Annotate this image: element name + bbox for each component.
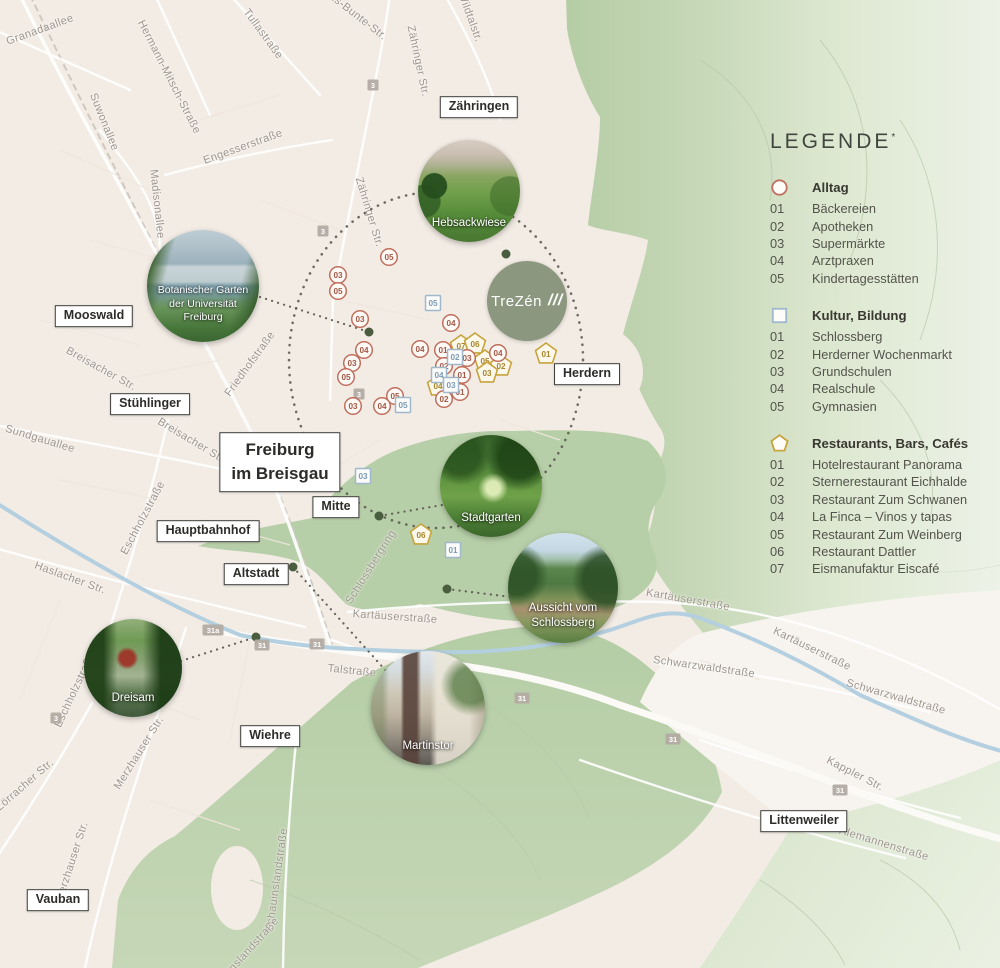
legend-item-bäckereien: 01Bäckereien [770,200,998,217]
legend-item-apotheken: 02Apotheken [770,217,998,234]
legend-item-label: Eismanufaktur Eiscafé [812,561,998,576]
legend-item-number: 01 [770,457,812,472]
svg-text:04: 04 [493,349,503,358]
svg-text:05: 05 [341,373,351,382]
legend-item-number: 03 [770,364,812,379]
legend-item-number: 03 [770,236,812,251]
svg-text:03: 03 [462,354,472,363]
svg-text:03: 03 [482,369,492,378]
legend-item-number: 02 [770,219,812,234]
legend-section-title: Alltag [812,180,998,195]
legend-body: Alltag01Bäckereien02Apotheken03Supermärk… [770,178,998,578]
marker-restaurants-01: 01 [536,343,557,363]
location-dot [375,512,384,521]
legend-item-number: 05 [770,271,812,286]
svg-text:02: 02 [450,353,460,362]
legend-title-asterisk: * [891,132,898,143]
legend-item-number: 01 [770,329,812,344]
legend-item-realschule: 04Realschule [770,380,998,397]
svg-text:04: 04 [415,345,425,354]
legend-item-label: Apotheken [812,219,998,234]
legend-item-number: 05 [770,527,812,542]
marker-kultur-03: 03 [356,469,371,484]
road-badge-31a: 31a [203,625,224,636]
legend-item-label: Kindertagesstätten [812,271,998,286]
legend-item-number: 04 [770,253,812,268]
legend-section-title: Kultur, Bildung [812,308,998,323]
svg-text:31: 31 [836,786,844,795]
legend-item-hotelrestaurant-panorama: 01Hotelrestaurant Panorama [770,456,998,473]
road-badges-layer: 333331a3131313131 [51,80,848,796]
svg-text:05: 05 [398,401,408,410]
svg-text:04: 04 [359,346,369,355]
marker-alltag-03: 03 [345,398,362,415]
location-dot [502,250,511,259]
poi-markers-layer: 0706050203040106050305030404040103030402… [330,249,557,558]
location-dot [443,585,452,594]
road-badge-3: 3 [51,713,62,724]
marker-kultur-02: 02 [448,350,463,365]
legend-item-number: 06 [770,544,812,559]
legend-item-label: Supermärkte [812,236,998,251]
svg-text:05: 05 [428,299,438,308]
svg-text:3: 3 [321,227,325,236]
road-badge-31: 31 [255,640,270,651]
legend-item-sternerestaurant-eichhalde: 02Sternerestaurant Eichhalde [770,473,998,490]
legend-item-label: Schlossberg [812,329,998,344]
legend-item-la-finca-vinos-y-tapas: 04La Finca – Vinos y tapas [770,508,998,525]
marker-alltag-05: 05 [338,369,355,386]
pentagon-icon [770,434,812,453]
marker-alltag-05: 05 [381,249,398,266]
svg-text:01: 01 [541,350,551,359]
marker-alltag-04: 04 [412,341,429,358]
svg-text:03: 03 [355,315,365,324]
svg-text:3: 3 [54,714,58,723]
svg-text:04: 04 [377,402,387,411]
marker-alltag-04: 04 [443,315,460,332]
legend-section-kultur: Kultur, Bildung01Schlossberg02Herderner … [770,306,998,415]
road-badge-3: 3 [318,226,329,237]
svg-text:05: 05 [333,287,343,296]
legend-panel: LEGENDE* Alltag01Bäckereien02Apotheken03… [770,130,998,578]
legend-section-alltag: Alltag01Bäckereien02Apotheken03Supermärk… [770,178,998,287]
marker-alltag-03: 03 [330,267,347,284]
road-badge-31: 31 [833,785,848,796]
legend-item-number: 01 [770,201,812,216]
legend-item-supermärkte: 03Supermärkte [770,235,998,252]
dotted-connector [181,637,256,661]
marker-kultur-05: 05 [426,296,441,311]
svg-text:03: 03 [333,271,343,280]
svg-text:31a: 31a [207,626,220,635]
legend-item-restaurant-zum-schwanen: 03Restaurant Zum Schwanen [770,491,998,508]
route-layer [181,192,583,672]
legend-item-gymnasien: 05Gymnasien [770,398,998,415]
svg-text:03: 03 [358,472,368,481]
legend-item-label: Gymnasien [812,399,998,414]
legend-item-eismanufaktur-eiscaf: 07Eismanufaktur Eiscafé [770,560,998,577]
legend-section-header-row: Restaurants, Bars, Cafés [770,434,998,453]
legend-item-number: 04 [770,509,812,524]
legend-item-restaurant-zum-weinberg: 05Restaurant Zum Weinberg [770,525,998,542]
legend-item-label: Hotelrestaurant Panorama [812,457,998,472]
marker-kultur-01: 01 [446,543,461,558]
svg-text:01: 01 [438,346,448,355]
svg-text:02: 02 [439,395,449,404]
legend-section-header-row: Alltag [770,178,998,197]
marker-alltag-04: 04 [374,398,391,415]
circle-icon [770,178,812,197]
road-badge-3: 3 [368,80,379,91]
svg-text:04: 04 [434,371,444,380]
location-dot [289,563,298,572]
svg-text:04: 04 [446,319,456,328]
legend-item-label: Grundschulen [812,364,998,379]
svg-text:31: 31 [518,694,526,703]
svg-text:31: 31 [669,735,677,744]
legend-item-label: Restaurant Dattler [812,544,998,559]
legend-item-label: Bäckereien [812,201,998,216]
svg-text:01: 01 [448,546,458,555]
legend-item-kindertagesstätten: 05Kindertagesstätten [770,270,998,287]
marker-alltag-04: 04 [490,345,507,362]
svg-text:06: 06 [470,340,480,349]
svg-text:3: 3 [357,390,361,399]
legend-item-label: La Finca – Vinos y tapas [812,509,998,524]
dotted-connector [293,567,387,672]
dotted-connector [379,504,448,516]
marker-alltag-05: 05 [330,283,347,300]
legend-item-schlossberg: 01Schlossberg [770,328,998,345]
legend-item-label: Realschule [812,381,998,396]
legend-section-restaurants: Restaurants, Bars, Cafés01Hotelrestauran… [770,434,998,578]
legend-item-herderner-wochenmarkt: 02Herderner Wochenmarkt [770,345,998,362]
legend-item-number: 02 [770,347,812,362]
svg-text:31: 31 [258,641,266,650]
svg-text:05: 05 [384,253,394,262]
legend-item-label: Restaurant Zum Weinberg [812,527,998,542]
square-icon [770,306,812,325]
road-badge-31: 31 [515,693,530,704]
road-badge-31: 31 [666,734,681,745]
svg-text:3: 3 [371,81,375,90]
svg-text:04: 04 [433,382,443,391]
marker-kultur-03: 03 [444,378,459,393]
legend-item-label: Herderner Wochenmarkt [812,347,998,362]
legend-item-number: 03 [770,492,812,507]
legend-section-header-row: Kultur, Bildung [770,306,998,325]
legend-section-title: Restaurants, Bars, Cafés [812,436,998,451]
freiburg-location-map: GranadaalleeSuwonalleeHermann-Mitsch-Str… [0,0,1000,968]
legend-item-label: Restaurant Zum Schwanen [812,492,998,507]
legend-item-arztpraxen: 04Arztpraxen [770,252,998,269]
legend-item-number: 05 [770,399,812,414]
svg-text:03: 03 [446,381,456,390]
road-badge-31: 31 [310,639,325,650]
svg-text:03: 03 [348,402,358,411]
location-dot [365,328,374,337]
legend-item-number: 04 [770,381,812,396]
svg-text:31: 31 [313,640,321,649]
legend-item-number: 07 [770,561,812,576]
marker-alltag-04: 04 [356,342,373,359]
legend-item-grundschulen: 03Grundschulen [770,363,998,380]
marker-kultur-05: 05 [396,398,411,413]
dotted-connector [447,589,511,597]
legend-item-label: Sternerestaurant Eichhalde [812,474,998,489]
marker-alltag-03: 03 [352,311,369,328]
svg-text:06: 06 [416,531,426,540]
legend-item-restaurant-dattler: 06Restaurant Dattler [770,543,998,560]
svg-text:03: 03 [347,359,357,368]
legend-item-number: 02 [770,474,812,489]
legend-title: LEGENDE* [770,130,998,154]
legend-item-label: Arztpraxen [812,253,998,268]
